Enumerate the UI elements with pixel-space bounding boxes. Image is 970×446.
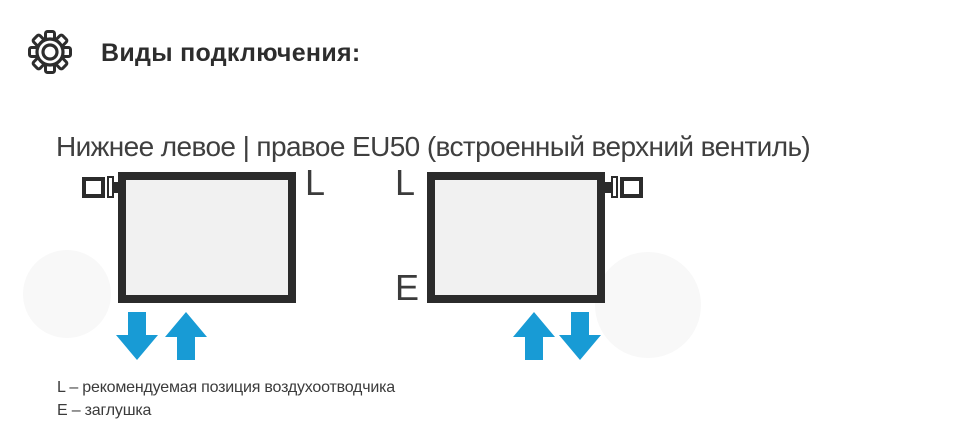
legend-line-l: L – рекомендуемая позиция воздухоотводчи… xyxy=(57,376,395,399)
radiator-left xyxy=(118,172,296,303)
arrow-up-icon xyxy=(513,312,555,360)
watermark-circle xyxy=(595,252,701,358)
connection-subtitle: Нижнее левое | правое EU50 (встроенный в… xyxy=(56,131,810,163)
valve-fitting-left-square xyxy=(82,177,105,198)
gear-icon xyxy=(28,30,72,74)
legend-line-e: E – заглушка xyxy=(57,399,395,422)
radiator-right xyxy=(427,172,605,303)
arrow-down-icon xyxy=(559,312,601,360)
valve-fitting-right-square xyxy=(620,177,643,198)
arrow-down-icon xyxy=(116,312,158,360)
valve-fitting-right-bar xyxy=(611,176,618,198)
page-title: Виды подключения: xyxy=(101,39,361,68)
connection-types-figure: Виды подключения: Нижнее левое | правое … xyxy=(0,0,970,446)
legend: L – рекомендуемая позиция воздухоотводчи… xyxy=(57,376,395,422)
label-l-left-radiator: L xyxy=(305,165,325,201)
arrow-up-icon xyxy=(165,312,207,360)
watermark-circle xyxy=(23,250,111,338)
label-l-right-radiator: L xyxy=(395,165,415,201)
label-e-right-radiator: E xyxy=(395,270,419,306)
